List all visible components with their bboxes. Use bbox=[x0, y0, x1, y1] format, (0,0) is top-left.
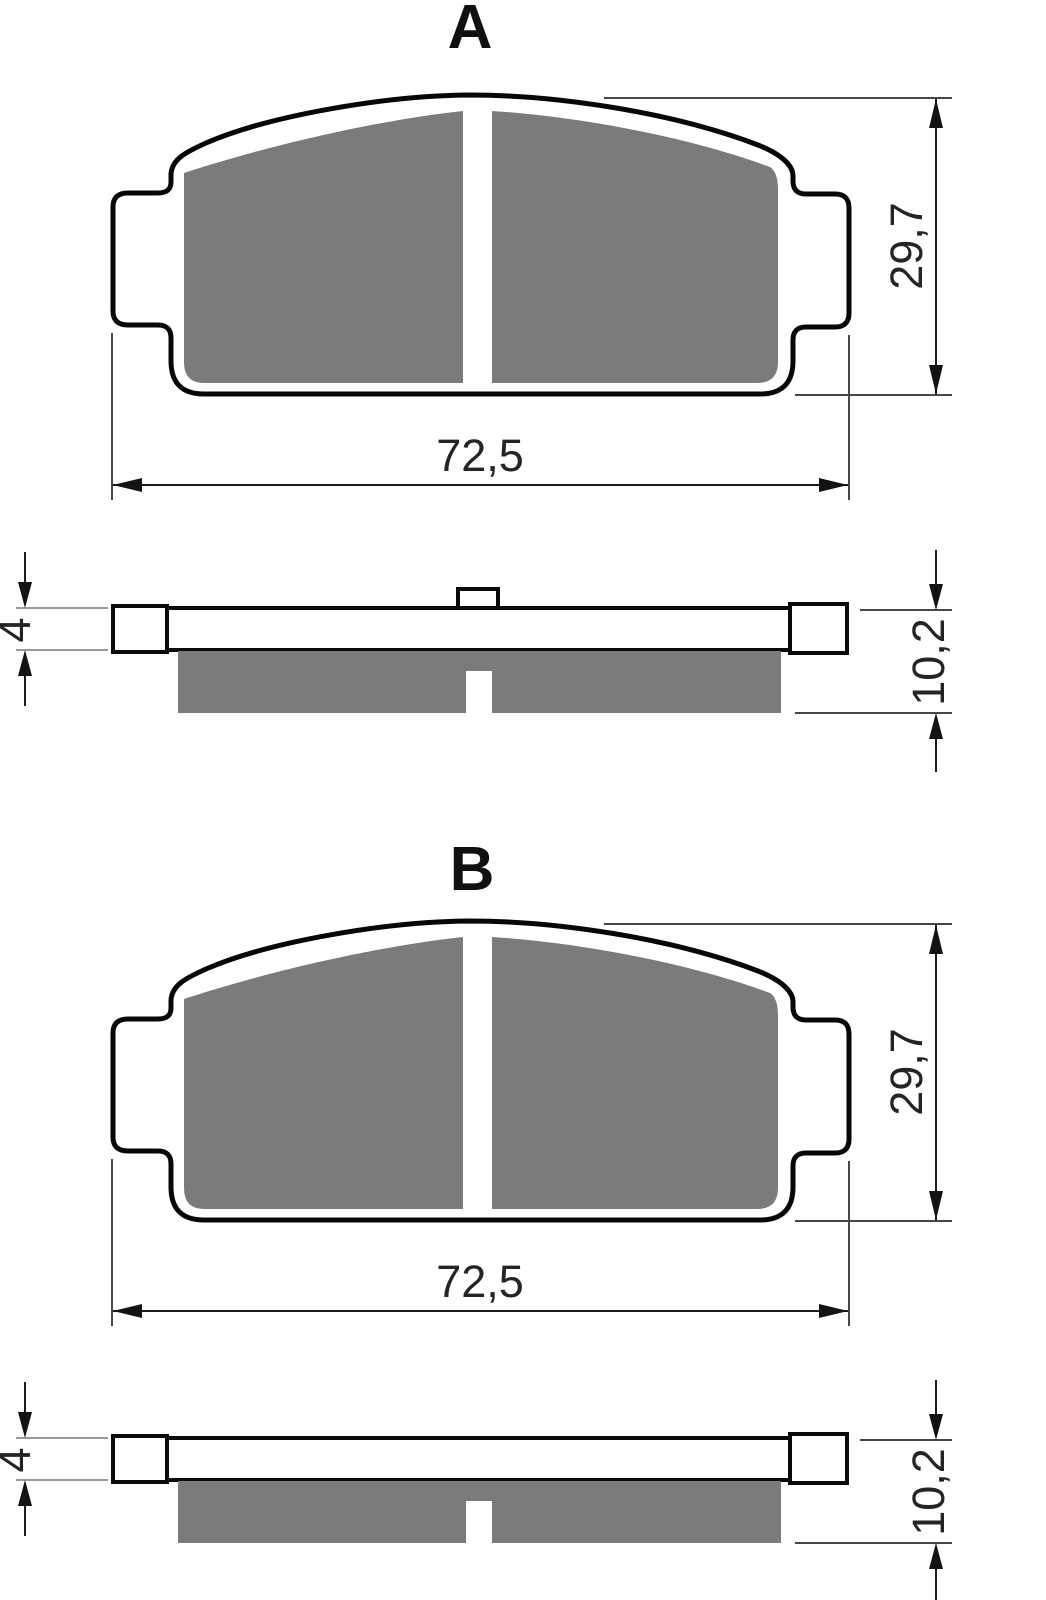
technical-drawing-canvas: A 29,7 72,5 bbox=[0, 0, 1046, 1600]
dim-height-value: 29,7 bbox=[881, 1028, 932, 1116]
section-b: B 29,7 72,5 bbox=[0, 835, 954, 1600]
drawing-page: A 29,7 72,5 bbox=[0, 0, 1046, 1600]
arrowhead-up-icon bbox=[18, 650, 32, 676]
pad-a-friction-section bbox=[178, 651, 781, 713]
dim-backing-value: 4 bbox=[0, 617, 40, 642]
dim-width-value: 72,5 bbox=[436, 1256, 524, 1307]
arrowhead-up-icon bbox=[929, 99, 943, 128]
pad-a-dim-backing: 4 bbox=[0, 552, 108, 706]
arrowhead-down-icon bbox=[929, 1414, 943, 1440]
dim-total-value: 10,2 bbox=[903, 1448, 954, 1536]
arrowhead-up-icon bbox=[18, 1480, 32, 1506]
arrowhead-left-icon bbox=[113, 1304, 142, 1318]
section-a: A 29,7 72,5 bbox=[0, 0, 954, 772]
pad-b-side-view: 4 10,2 bbox=[0, 1380, 954, 1600]
arrowhead-down-icon bbox=[929, 584, 943, 610]
dim-backing-value: 4 bbox=[0, 1447, 40, 1472]
pad-b-right-ear-section bbox=[790, 1434, 847, 1483]
arrowhead-up-icon bbox=[929, 925, 943, 954]
pad-b-front-view: 29,7 72,5 bbox=[112, 921, 952, 1326]
dim-width-value: 72,5 bbox=[436, 430, 524, 481]
pad-b-friction-section bbox=[178, 1481, 781, 1543]
pad-a-side-view bbox=[113, 589, 847, 713]
arrowhead-right-icon bbox=[819, 1304, 848, 1318]
pad-b-left-ear-section bbox=[113, 1436, 167, 1482]
arrowhead-left-icon bbox=[113, 478, 142, 492]
pad-a-right-ear-section bbox=[790, 604, 847, 653]
arrowhead-down-icon bbox=[929, 365, 943, 394]
dim-height-value: 29,7 bbox=[881, 202, 932, 290]
arrowhead-up-icon bbox=[929, 1543, 943, 1569]
pad-a-dim-total: 10,2 bbox=[795, 550, 954, 772]
pad-b-backing-plate bbox=[167, 1438, 790, 1480]
section-b-label: B bbox=[450, 835, 495, 904]
arrowhead-right-icon bbox=[819, 478, 848, 492]
arrowhead-down-icon bbox=[18, 1412, 32, 1438]
arrowhead-down-icon bbox=[18, 582, 32, 608]
section-a-label: A bbox=[448, 0, 493, 62]
pad-a-backing-plate bbox=[167, 608, 790, 650]
pad-b-dim-total: 10,2 bbox=[795, 1380, 954, 1600]
dim-total-value: 10,2 bbox=[903, 618, 954, 706]
arrowhead-up-icon bbox=[929, 713, 943, 739]
arrowhead-down-icon bbox=[929, 1191, 943, 1220]
pad-a-left-ear-section bbox=[113, 606, 167, 652]
pad-b-dim-backing: 4 bbox=[0, 1382, 108, 1536]
pad-a-front-view bbox=[113, 95, 849, 394]
